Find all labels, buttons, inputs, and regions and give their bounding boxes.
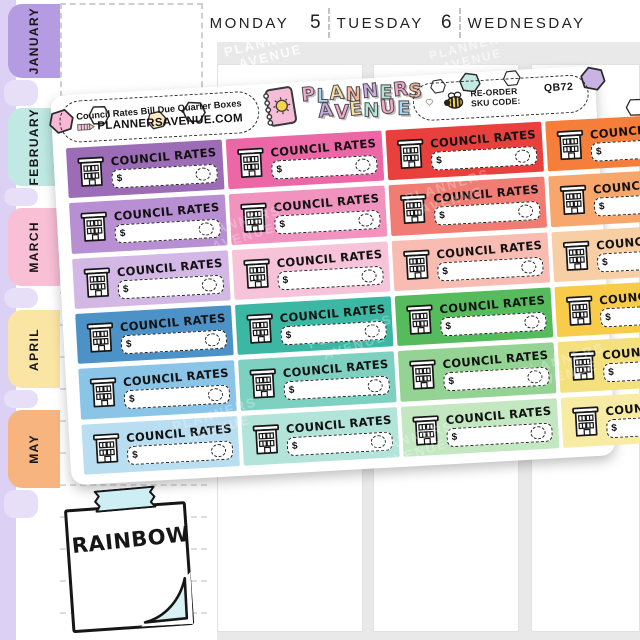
amount-write-in-box: $: [124, 385, 231, 410]
amount-write-in-box: $: [283, 376, 390, 401]
currency-symbol: $: [608, 367, 614, 378]
building-icon: [562, 293, 598, 329]
amount-write-in-box: $: [431, 146, 538, 171]
hidden-tab: [4, 288, 38, 308]
heart-icon: [424, 96, 436, 108]
amount-write-in-box: $: [446, 422, 553, 447]
amount-write-in-box: $: [443, 367, 550, 392]
day-name: TUESDAY: [337, 14, 424, 32]
amount-write-in-box: $: [437, 257, 544, 282]
building-icon: [399, 247, 435, 283]
currency-symbol: $: [116, 173, 122, 184]
currency-symbol: $: [451, 432, 457, 443]
amount-write-in-box: $: [280, 321, 387, 346]
council-rates-sticker: COUNCIL RATES$: [392, 232, 551, 291]
building-icon: [408, 412, 444, 448]
council-rates-sticker: COUNCIL RATES$: [395, 287, 554, 346]
currency-symbol: $: [445, 321, 451, 332]
currency-symbol: $: [123, 284, 129, 295]
currency-symbol: $: [448, 376, 454, 387]
paid-circle: [518, 205, 534, 219]
amount-write-in-box: $: [434, 201, 541, 226]
hidden-tab: [4, 390, 38, 408]
council-rates-sticker: COUNCIL RATES$: [557, 334, 640, 393]
currency-symbol: $: [285, 330, 291, 341]
currency-symbol: $: [289, 385, 295, 396]
building-icon: [559, 238, 595, 274]
building-icon: [242, 311, 278, 347]
council-rates-sticker: COUNCIL RATES$: [398, 343, 557, 402]
paid-circle: [530, 426, 546, 440]
paid-circle: [524, 315, 540, 329]
council-rates-sticker: COUNCIL RATES$: [401, 398, 560, 457]
sticker-label: COUNCIL RATES: [605, 395, 640, 419]
currency-symbol: $: [599, 202, 605, 213]
rainbow-sticky-note: RAINBOW: [48, 486, 216, 640]
paid-circle: [358, 214, 374, 228]
sticker-label: COUNCIL RATES: [596, 229, 640, 253]
amount-write-in-box: $: [114, 219, 221, 244]
month-tab-label: MAY: [27, 434, 41, 464]
council-rates-sticker: COUNCIL RATES$: [78, 360, 237, 419]
paid-circle: [198, 223, 214, 237]
product-label-pill: Council Rates Bill Due Quarter Boxes PLA…: [58, 90, 260, 143]
paid-circle: [370, 435, 386, 449]
council-rates-sticker: COUNCIL RATES$: [554, 278, 640, 337]
currency-symbol: $: [605, 312, 611, 323]
sticker-sheet: Council Rates Bill Due Quarter Boxes PLA…: [50, 66, 616, 486]
building-icon: [76, 209, 112, 245]
council-rates-sticker: COUNCIL RATES$: [72, 250, 231, 309]
building-icon: [80, 265, 116, 301]
amount-write-in-box: $: [127, 440, 234, 465]
currency-symbol: $: [602, 257, 608, 268]
paid-circle: [367, 379, 383, 393]
building-icon: [233, 145, 269, 181]
council-rates-sticker: COUNCIL RATES$: [75, 305, 234, 364]
building-icon: [236, 200, 272, 236]
building-icon: [239, 256, 275, 292]
currency-symbol: $: [132, 449, 138, 460]
day-name: WEDNESDAY: [468, 14, 586, 32]
amount-write-in-box: $: [594, 192, 640, 217]
paid-circle: [205, 333, 221, 347]
pencil-icon: [76, 123, 94, 132]
currency-symbol: $: [611, 423, 617, 434]
currency-symbol: $: [126, 339, 132, 350]
sku-code: QB72: [544, 81, 574, 95]
council-rates-sticker: COUNCIL RATES$: [66, 139, 225, 198]
paid-circle: [201, 278, 217, 292]
notes-box: [60, 3, 203, 97]
building-icon: [393, 136, 429, 172]
currency-symbol: $: [439, 211, 445, 222]
building-icon: [396, 191, 432, 227]
currency-symbol: $: [596, 146, 602, 157]
paid-circle: [521, 260, 537, 274]
currency-symbol: $: [120, 229, 126, 240]
building-icon: [73, 154, 109, 190]
council-rates-sticker: COUNCIL RATES$: [561, 389, 640, 448]
amount-write-in-box: $: [271, 155, 378, 180]
month-tab-may: MAY: [8, 410, 60, 488]
page-fold-icon: [139, 572, 194, 627]
council-rates-sticker: COUNCIL RATES$: [81, 416, 240, 475]
currency-symbol: $: [436, 155, 442, 166]
council-rates-sticker: COUNCIL RATES$: [551, 223, 640, 282]
building-icon: [553, 127, 589, 163]
paid-circle: [211, 444, 227, 458]
building-icon: [245, 366, 281, 402]
day-separator: [328, 8, 330, 38]
sticker-label: COUNCIL RATES: [599, 284, 640, 308]
currency-symbol: $: [442, 266, 448, 277]
building-icon: [89, 430, 125, 466]
building-icon: [249, 421, 285, 457]
council-rates-sticker: COUNCIL RATES$: [232, 241, 391, 300]
month-tab-april: APRIL: [8, 310, 60, 388]
day-number: 5: [310, 12, 321, 34]
council-rates-sticker: COUNCIL RATES$: [69, 195, 228, 254]
day-header: 6WEDNESDAY: [441, 8, 586, 38]
amount-write-in-box: $: [277, 265, 384, 290]
brand-letter: E: [397, 101, 411, 119]
brand-letter: U: [380, 99, 398, 118]
paid-circle: [361, 269, 377, 283]
amount-write-in-box: $: [440, 312, 547, 337]
month-tab-label: MARCH: [27, 221, 41, 273]
building-icon: [565, 348, 601, 384]
building-icon: [556, 182, 592, 218]
brand-letter: E: [349, 101, 365, 120]
building-icon: [402, 302, 438, 338]
council-rates-sticker: COUNCIL RATES$: [545, 113, 640, 172]
notebook-icon: [258, 84, 300, 131]
brand-letter: A: [317, 102, 335, 121]
day-separator: [459, 8, 461, 38]
hidden-tab: [4, 80, 38, 106]
brand-letter: V: [334, 105, 350, 123]
product-photo: 4MONDAY5TUESDAY6WEDNESDAY JANUARYFEBRUAR…: [0, 0, 640, 640]
paid-circle: [515, 149, 531, 163]
bee-icon: [438, 90, 467, 112]
building-icon: [83, 320, 119, 356]
amount-write-in-box: $: [274, 210, 381, 235]
currency-symbol: $: [279, 220, 285, 231]
council-rates-sticker: COUNCIL RATES$: [385, 122, 544, 181]
amount-write-in-box: $: [117, 274, 224, 299]
currency-symbol: $: [292, 441, 298, 452]
paid-circle: [355, 158, 371, 172]
amount-write-in-box: $: [286, 431, 393, 456]
currency-symbol: $: [282, 275, 288, 286]
day-header: 5TUESDAY: [310, 8, 424, 38]
council-rates-sticker: COUNCIL RATES$: [548, 168, 640, 227]
sticker-label: COUNCIL RATES: [602, 339, 640, 363]
council-rates-sticker: COUNCIL RATES$: [226, 131, 385, 190]
building-icon: [568, 403, 604, 439]
council-rates-sticker: COUNCIL RATES$: [229, 186, 388, 245]
paid-circle: [364, 324, 380, 338]
brand-logo: PLANNERS AVENUE: [260, 78, 425, 129]
month-tab-march: MARCH: [8, 208, 60, 286]
month-tab-label: APRIL: [27, 328, 41, 371]
day-name: MONDAY: [210, 14, 290, 32]
paid-circle: [195, 167, 211, 181]
brand-letter: P: [300, 86, 317, 105]
hidden-tab: [4, 188, 38, 206]
paid-circle: [527, 370, 543, 384]
currency-symbol: $: [129, 394, 135, 405]
building-icon: [86, 375, 122, 411]
day-number: 6: [441, 12, 452, 34]
sticker-label: COUNCIL RATES: [589, 118, 640, 142]
amount-write-in-box: $: [111, 164, 218, 189]
month-tab-january: JANUARY: [8, 4, 60, 78]
council-rates-sticker: COUNCIL RATES$: [241, 407, 400, 466]
sticker-grid: COUNCIL RATES$ COUNCIL RATES$ COUNCIL RA…: [66, 119, 602, 474]
reorder-label-2: SKU CODE:: [471, 97, 521, 110]
brand-letter: N: [364, 103, 381, 121]
council-rates-sticker: COUNCIL RATES$: [235, 296, 394, 355]
month-tab-label: JANUARY: [27, 7, 41, 74]
month-tab-label: FEBRUARY: [27, 108, 41, 185]
hidden-tab: [4, 490, 38, 518]
amount-write-in-box: $: [120, 330, 227, 355]
sticker-label: COUNCIL RATES: [592, 174, 640, 198]
currency-symbol: $: [276, 164, 282, 175]
brand-line-avenue: AVENUE: [318, 99, 425, 122]
council-rates-sticker: COUNCIL RATES$: [388, 177, 547, 236]
building-icon: [405, 357, 441, 393]
council-rates-sticker: COUNCIL RATES$: [238, 352, 397, 411]
paid-circle: [208, 388, 224, 402]
